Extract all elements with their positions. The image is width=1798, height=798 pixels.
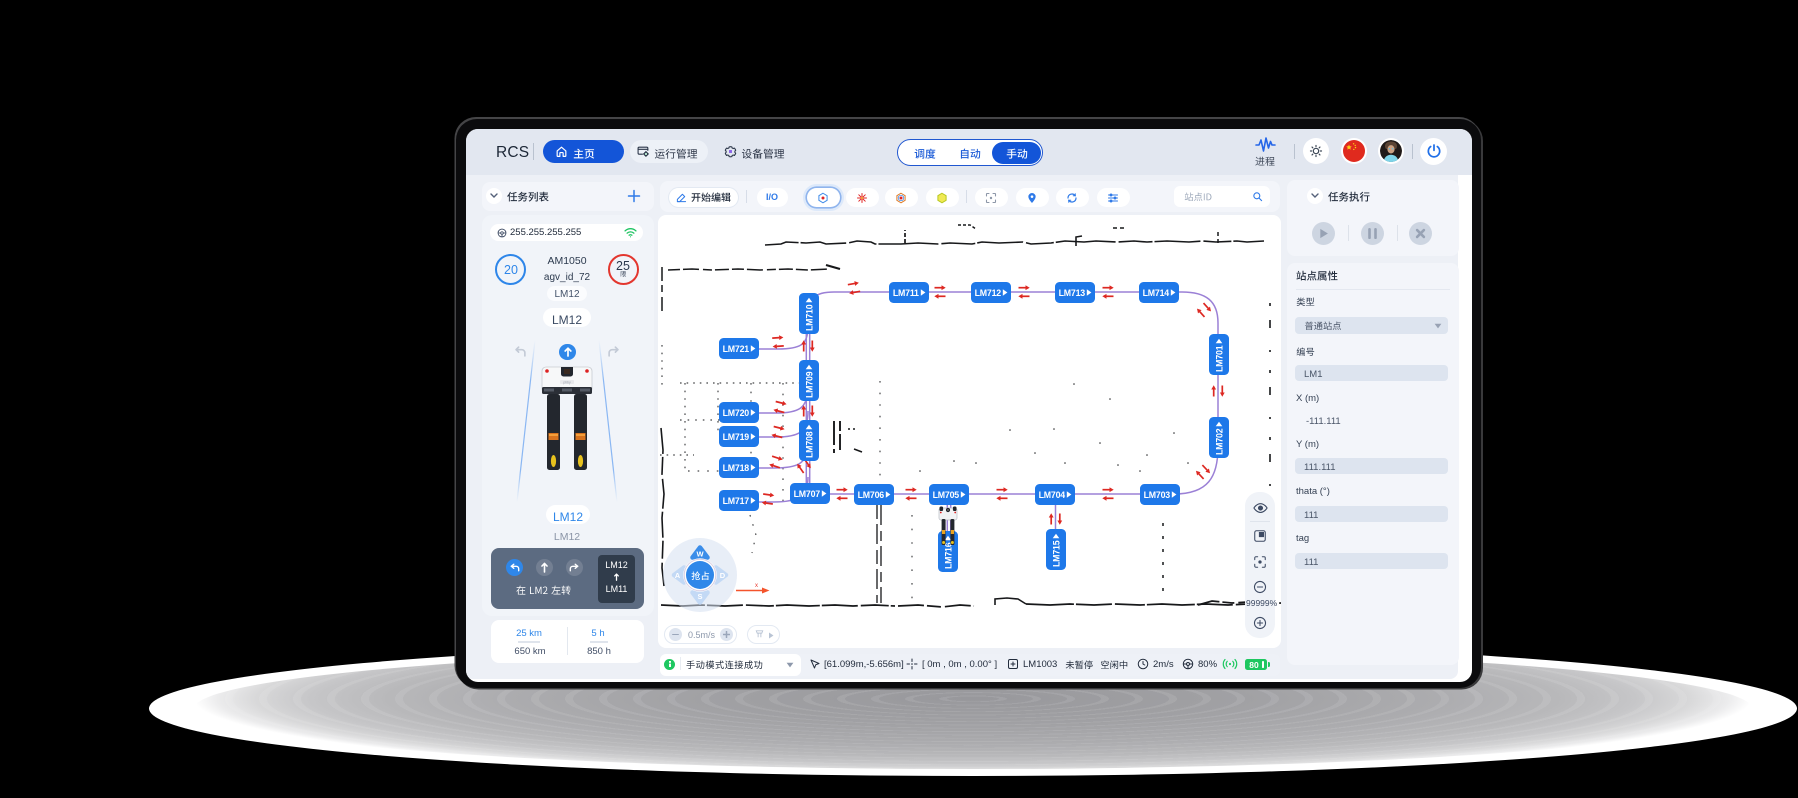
svg-text:LM707: LM707 <box>794 489 821 499</box>
svg-text:D: D <box>720 571 726 580</box>
svg-text:A: A <box>675 571 681 580</box>
svg-text:LM717: LM717 <box>723 496 750 506</box>
svg-text:LM712: LM712 <box>975 288 1002 298</box>
svg-text:LM719: LM719 <box>723 432 750 442</box>
svg-text:LM701: LM701 <box>1214 345 1224 372</box>
svg-text:LM714: LM714 <box>1143 288 1170 298</box>
svg-text:phby: phby <box>563 381 571 385</box>
svg-text:LM716: LM716 <box>943 542 953 569</box>
svg-text:LM711: LM711 <box>893 288 919 298</box>
svg-text:LM713: LM713 <box>1059 288 1086 298</box>
svg-text:x: x <box>755 583 758 589</box>
svg-text:LM721: LM721 <box>723 344 750 354</box>
svg-text:LM710: LM710 <box>804 304 814 331</box>
svg-text:LM705: LM705 <box>933 490 960 500</box>
svg-text:W: W <box>696 550 704 559</box>
svg-text:LM715: LM715 <box>1051 540 1061 567</box>
svg-text:LM702: LM702 <box>1214 428 1224 455</box>
svg-text:LM706: LM706 <box>858 490 885 500</box>
svg-text:S: S <box>697 592 702 601</box>
svg-text:LM703: LM703 <box>1144 490 1171 500</box>
svg-text:LM720: LM720 <box>723 408 750 418</box>
svg-text:LM709: LM709 <box>804 371 814 398</box>
svg-text:LM708: LM708 <box>804 431 814 458</box>
svg-text:LM718: LM718 <box>723 463 750 473</box>
svg-text:LM704: LM704 <box>1039 490 1066 500</box>
